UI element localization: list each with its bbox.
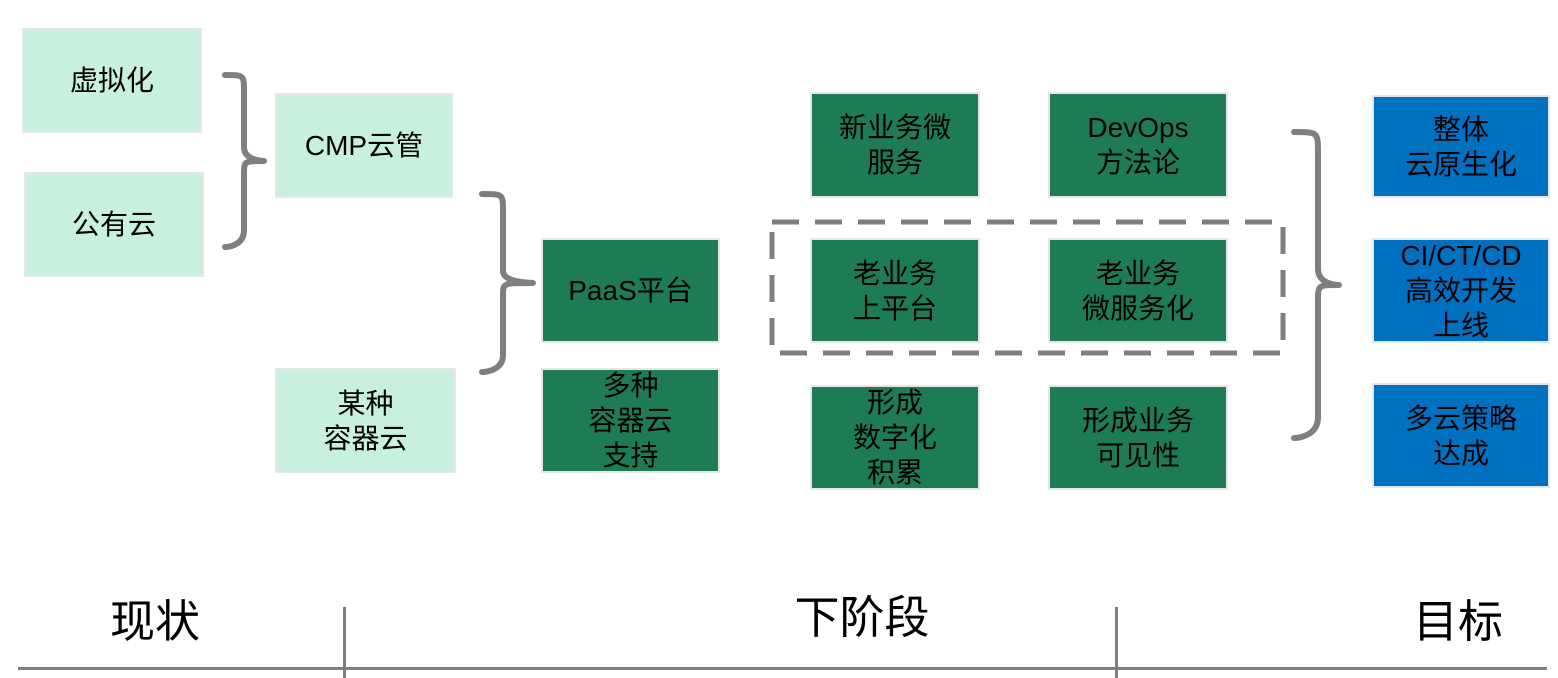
brace-mid-group-icon: [479, 189, 537, 377]
box-multi-container-support: 多种 容器云 支持: [541, 368, 720, 473]
box-ci-ct-cd: CI/CT/CD 高效开发 上线: [1372, 238, 1550, 343]
box-some-container-cloud: 某种 容器云: [275, 368, 456, 473]
stage-divider-current-next: [343, 607, 346, 678]
box-digital-accumulation: 形成 数字化 积累: [810, 385, 980, 490]
diagram-canvas: 虚拟化 公有云 CMP云管 某种 容器云 PaaS平台 多种 容器云 支持 新业…: [0, 0, 1558, 678]
brace-left-group-icon: [222, 70, 268, 252]
box-new-business-microservice: 新业务微 服务: [810, 92, 980, 198]
box-cmp-cloud-management: CMP云管: [275, 93, 453, 198]
brace-goal-group-icon: [1291, 127, 1343, 443]
stage-axis-line: [18, 667, 1547, 670]
stage-label-next: 下阶段: [787, 592, 937, 644]
box-multicloud-strategy: 多云策略 达成: [1372, 383, 1550, 488]
stage-label-current: 现状: [85, 596, 225, 648]
dashed-group-rectangle: [768, 218, 1288, 358]
box-paas-platform: PaaS平台: [541, 238, 720, 343]
box-overall-cloud-native: 整体 云原生化: [1372, 95, 1550, 198]
stage-divider-next-goal: [1115, 607, 1118, 678]
box-business-visibility: 形成业务 可见性: [1048, 385, 1228, 490]
box-virtualization: 虚拟化: [22, 28, 202, 133]
box-public-cloud: 公有云: [24, 172, 204, 277]
box-devops-methodology: DevOps 方法论: [1048, 92, 1228, 198]
stage-label-goal: 目标: [1393, 596, 1523, 648]
